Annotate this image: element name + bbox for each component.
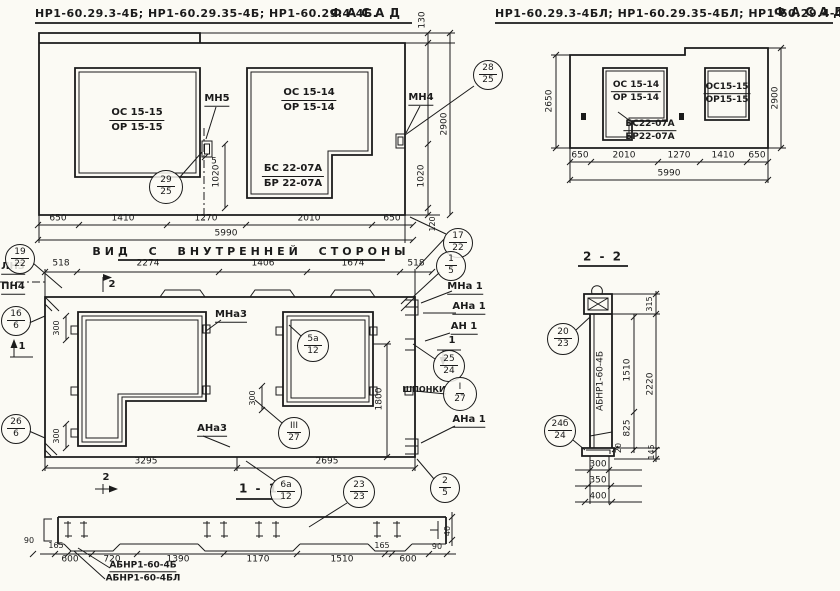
dim-20: 20 xyxy=(615,443,623,453)
dim-5: 5 xyxy=(211,157,217,166)
window-mark-os15-14: ОС 15-14ОР 15-14 xyxy=(281,87,336,113)
part-mark-abnr: АБНР1-60-4Б xyxy=(596,351,605,411)
callout-28-25: 2825 xyxy=(473,60,503,90)
dim-650: 650 xyxy=(571,151,588,160)
inner-view-title: ВИД С ВНУТРЕННЕЙ СТОРОНЫ xyxy=(92,246,409,258)
callout-20-23: 2023 xyxy=(547,323,579,355)
dim-1800: 1800 xyxy=(375,388,384,411)
callout-6a-12: 6а12 xyxy=(270,476,302,508)
dim-518: 518 xyxy=(407,259,424,268)
dim-518: 518 xyxy=(52,259,69,268)
callout-5a-12: 5а12 xyxy=(297,330,329,362)
dim-600: 600 xyxy=(399,555,416,564)
section-marker-2-top: 2 xyxy=(109,280,116,291)
callout-19-22: 1922 xyxy=(5,244,35,274)
section-marker-1-right: 1 xyxy=(449,336,456,347)
callout-16-6: 166 xyxy=(1,306,31,336)
mount-label-mn5: МН5 xyxy=(204,94,229,107)
anchor-label-mna1: МНа 1 xyxy=(447,282,483,295)
dim-300: 300 xyxy=(53,320,61,335)
facade-right-title-word: ФАСАД xyxy=(774,6,840,19)
anchor-label-ana3: АНа3 xyxy=(197,424,227,437)
callout-1-5: 15 xyxy=(436,251,466,281)
facade-left-title-word: ФАСАД xyxy=(330,7,405,20)
dim-2274: 2274 xyxy=(137,259,160,268)
callout-23-23: 2323 xyxy=(343,476,375,508)
dim-1510: 1510 xyxy=(623,359,632,382)
anchor-label-mna3: МНа3 xyxy=(215,310,247,323)
dim-2220: 2220 xyxy=(646,373,655,396)
callout-I-27: I27 xyxy=(443,377,477,411)
dim-650: 650 xyxy=(748,151,765,160)
dim-2650: 2650 xyxy=(545,90,554,113)
dim-90: 90 xyxy=(432,543,442,551)
section-marker-2-bottom: 2 xyxy=(103,473,110,484)
callout-29-25: 2925 xyxy=(149,170,183,204)
callout-26-6: 266 xyxy=(1,414,31,444)
dim-165: 165 xyxy=(48,542,63,550)
dim-1020: 1020 xyxy=(417,165,426,188)
section-marker-1-left: 1 xyxy=(19,342,26,353)
dim-1410: 1410 xyxy=(112,214,135,223)
anchor-label-an1: АН 1 xyxy=(451,322,478,335)
dim-1406: 1406 xyxy=(252,259,275,268)
dim-2900: 2900 xyxy=(440,113,449,136)
dim-165: 165 xyxy=(374,542,389,550)
dim-1410: 1410 xyxy=(712,151,735,160)
dim-5990: 5990 xyxy=(215,229,238,238)
part-mark-abnr: АБНР1-60-4Б xyxy=(109,561,176,572)
dim-350: 350 xyxy=(589,476,606,485)
dim-300: 300 xyxy=(53,428,61,443)
dim-2695: 2695 xyxy=(316,457,339,466)
anchor-label-ana1: АНа 1 xyxy=(452,302,485,315)
dim-400: 400 xyxy=(589,492,606,501)
dim-1270: 1270 xyxy=(668,151,691,160)
window-mark-os15-14: ОС 15-14ОР 15-14 xyxy=(611,80,661,104)
dim-1270: 1270 xyxy=(195,214,218,223)
callout-24b-24: 24б24 xyxy=(544,415,576,447)
dim-120: 120 xyxy=(429,216,437,231)
callout-III-27: III27 xyxy=(278,417,310,449)
sill-mark-bs22: БС22-07АБР22-07А xyxy=(623,119,676,143)
dim-5990: 5990 xyxy=(658,169,681,178)
dim-300: 300 xyxy=(589,460,606,469)
keys-label-shponki: ШПОНКИ xyxy=(402,386,445,394)
dim-1020: 1020 xyxy=(212,165,221,188)
dim-650: 650 xyxy=(49,214,66,223)
dim-40: 40 xyxy=(444,526,452,536)
window-mark-os15-15: ОС15-15ОР15-15 xyxy=(703,82,750,106)
facade-left-title: НР1-60.29.3-4Б; НР1-60.29.35-4Б; НР1-60.… xyxy=(35,8,377,20)
dim-1170: 1170 xyxy=(247,555,270,564)
anchor-label-ana1b: АНа 1 xyxy=(452,415,485,428)
mount-label-mn4: МН4 xyxy=(408,93,433,106)
dim-300: 300 xyxy=(249,390,257,405)
dim-2900: 2900 xyxy=(771,87,780,110)
drawing-sheet: НР1-60.29.3-4Б; НР1-60.29.35-4Б; НР1-60.… xyxy=(0,0,840,591)
dim-1510: 1510 xyxy=(331,555,354,564)
dim-650: 650 xyxy=(383,214,400,223)
window-mark-os15-15: ОС 15-15ОР 15-15 xyxy=(109,107,164,133)
sill-mark-bs22: БС 22-07АБР 22-07А xyxy=(262,163,324,189)
dim-2010: 2010 xyxy=(613,151,636,160)
dim-600: 600 xyxy=(61,555,78,564)
dim-825: 825 xyxy=(623,419,632,436)
part-mark-abnr-l: АБНР1-60-4БЛ xyxy=(106,574,181,583)
panel-label-pn4: ПН4 xyxy=(1,282,25,295)
callout-2-5: 25 xyxy=(430,473,460,503)
dim-3295: 3295 xyxy=(135,457,158,466)
dim-315: 315 xyxy=(646,296,654,311)
section-2-2-title: 2 - 2 xyxy=(583,251,623,264)
dim-145: 145 xyxy=(648,444,656,459)
dim-90: 90 xyxy=(24,537,34,545)
dim-130: 130 xyxy=(418,11,427,28)
dim-1674: 1674 xyxy=(342,259,365,268)
dim-2010: 2010 xyxy=(298,214,321,223)
